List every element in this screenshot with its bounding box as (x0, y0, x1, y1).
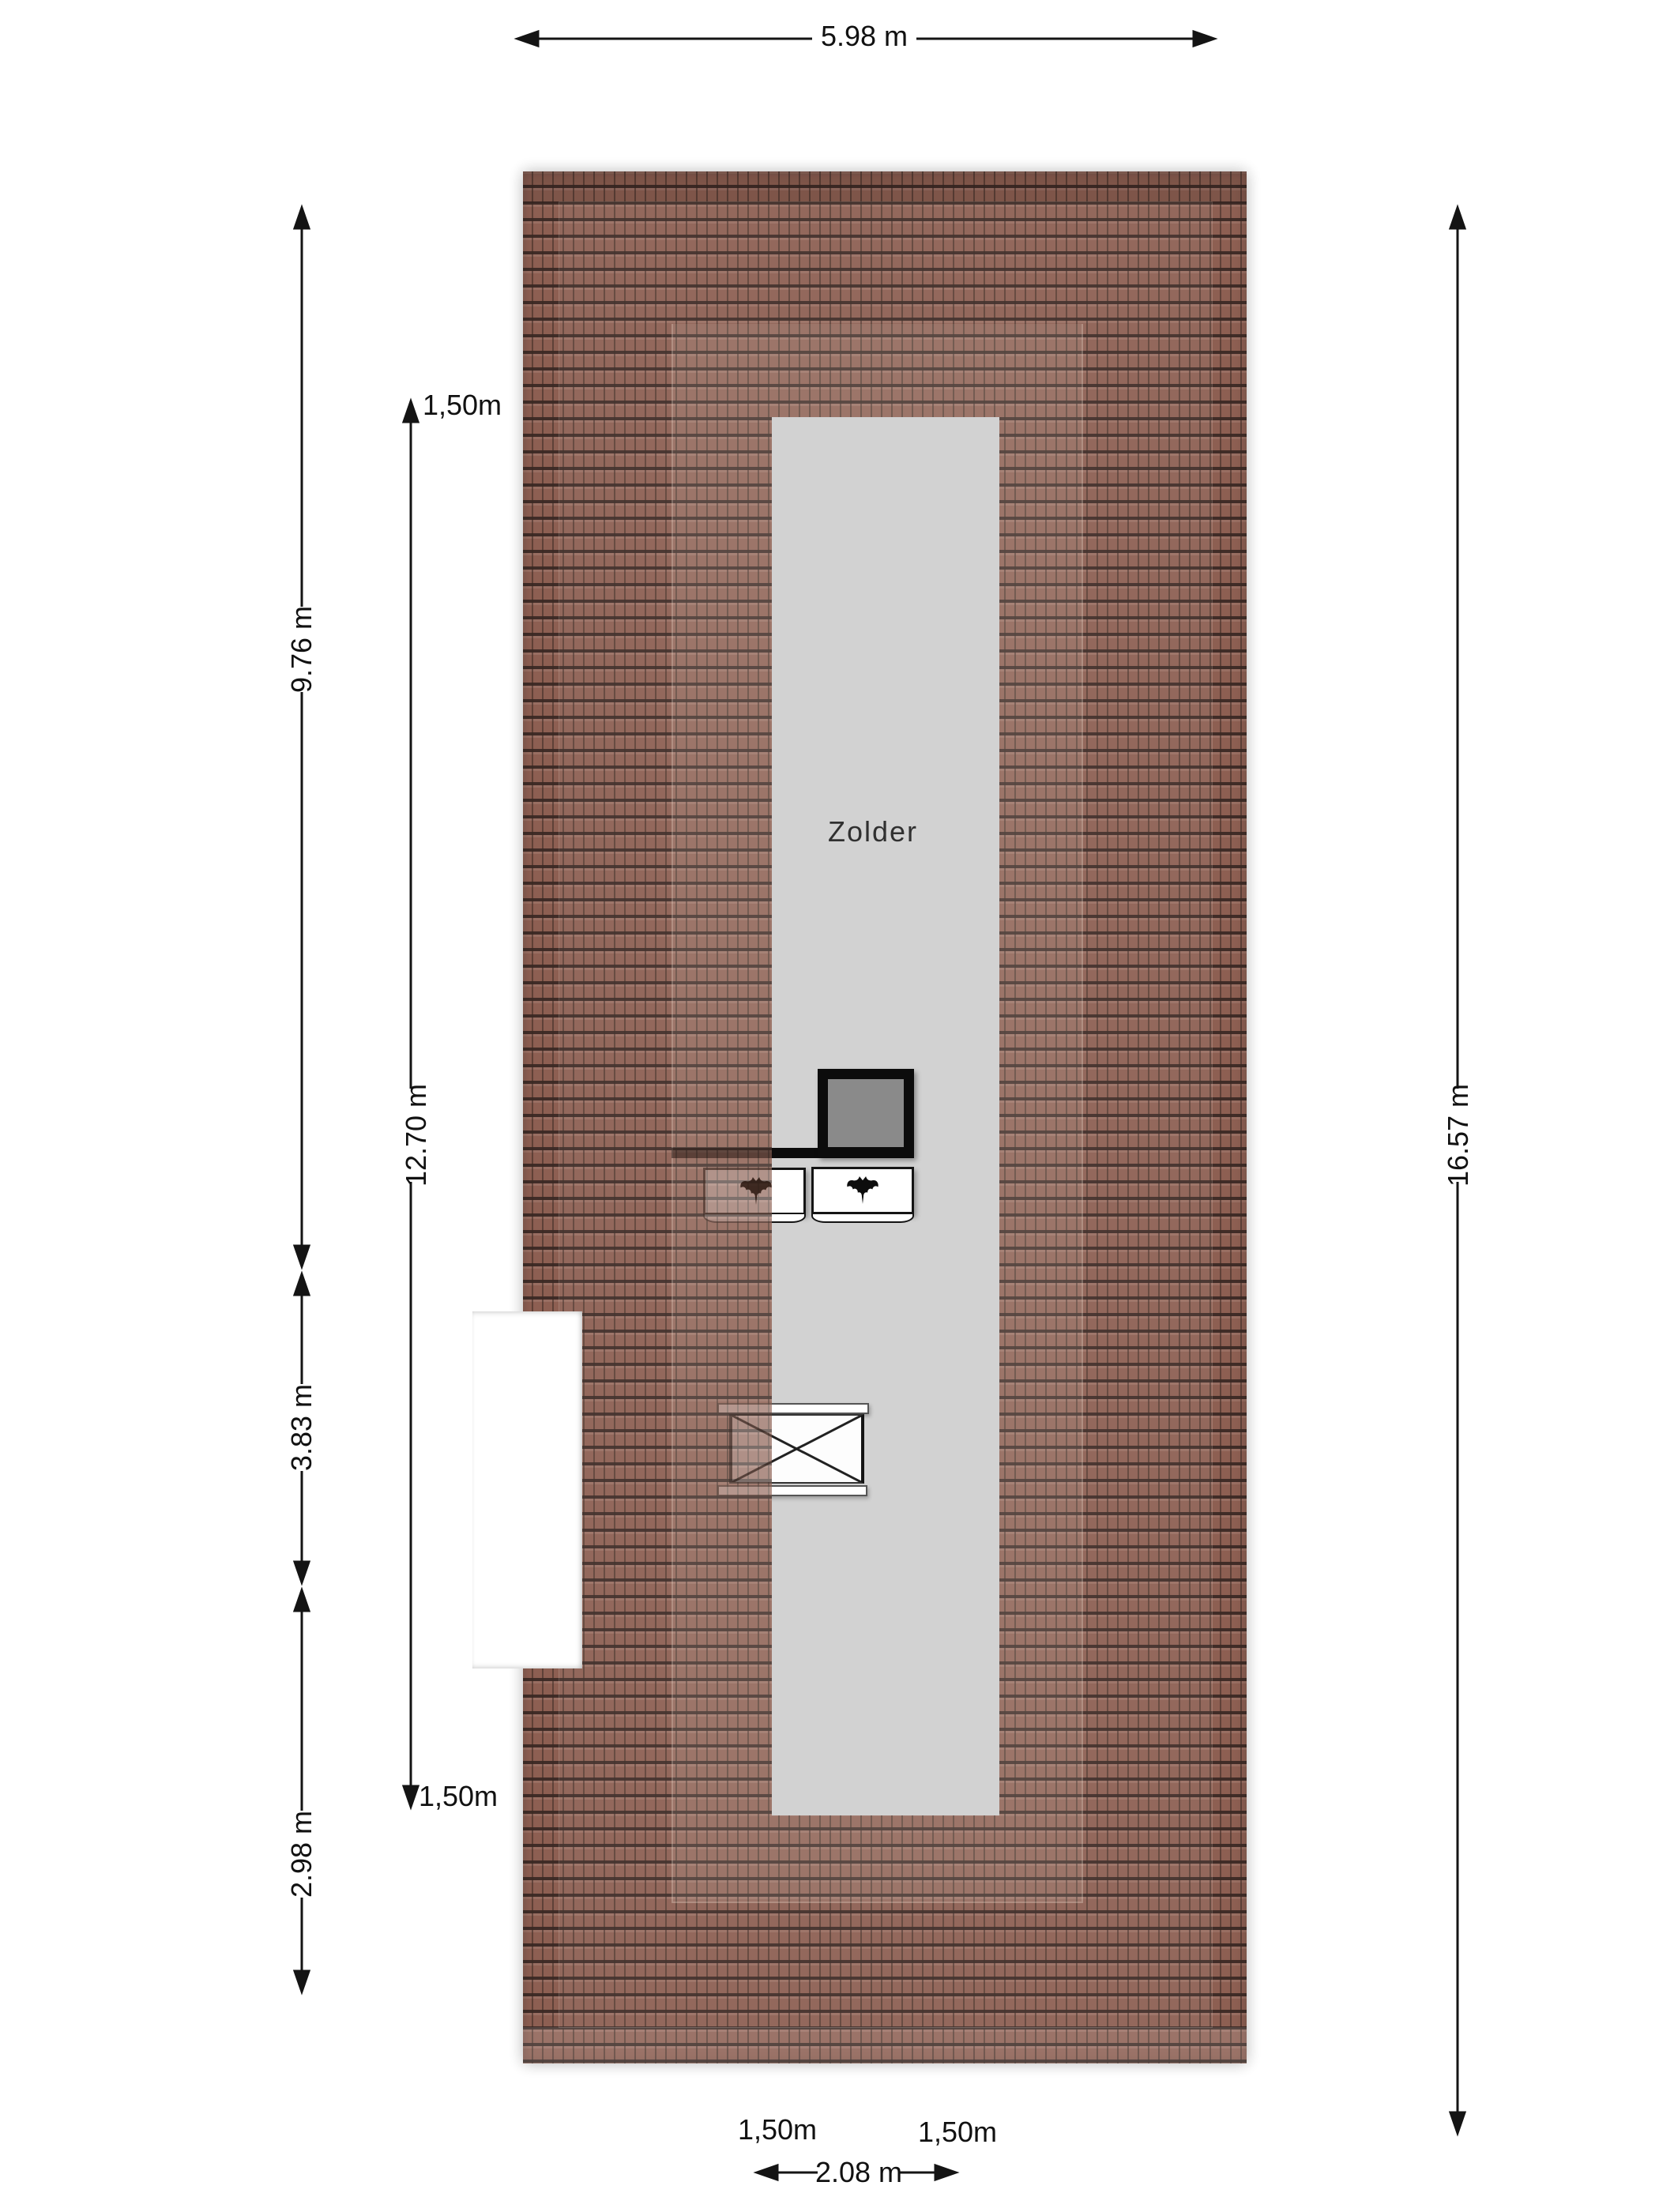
dim-top-width: 5.98 m (821, 20, 908, 53)
stair-opening-bottom-beam (772, 1485, 867, 1496)
stair-opening-bottom-beam (717, 1485, 772, 1496)
dim-right-height: 16.57 m (1442, 1084, 1475, 1187)
roof-window-right-sill (811, 1214, 914, 1223)
dim-bottom-span: 2.08 m (815, 2156, 902, 2189)
roof-window-left (772, 1168, 806, 1215)
room-name-label: Zolder (828, 815, 918, 848)
roof-notch (472, 1311, 582, 1668)
height-line-label-bottom: 1,50m (419, 1780, 498, 1813)
stair-opening (772, 1414, 864, 1484)
stair-opening (729, 1414, 772, 1484)
roof-window-icon (846, 1176, 879, 1206)
chimney (818, 1069, 914, 1157)
dim-left-segment-1: 9.76 m (285, 606, 318, 693)
floor-plan-canvas: Zolder 5.98 m 9.76 m 3. (0, 0, 1659, 2212)
roof-window-icon (772, 1176, 773, 1206)
roof-window-left-sill (703, 1214, 772, 1223)
room-objects (772, 417, 999, 1815)
stair-opening-top-beam (772, 1403, 869, 1414)
dim-left-segment-2: 3.83 m (285, 1384, 318, 1471)
dim-left-inner-span: 12.70 m (400, 1084, 433, 1187)
roof-window-left-sill (772, 1214, 806, 1223)
roof-window-icon (739, 1176, 772, 1206)
chimney-wall (671, 1148, 772, 1158)
height-line-label-bottom-left: 1,50m (738, 2113, 817, 2146)
dim-left-segment-3: 2.98 m (285, 1811, 318, 1898)
height-line-label-top: 1,50m (423, 389, 502, 422)
under-roof-objects (0, 0, 772, 2212)
stair-opening-top-beam (717, 1403, 772, 1414)
height-line-label-bottom-right: 1,50m (918, 2116, 997, 2149)
